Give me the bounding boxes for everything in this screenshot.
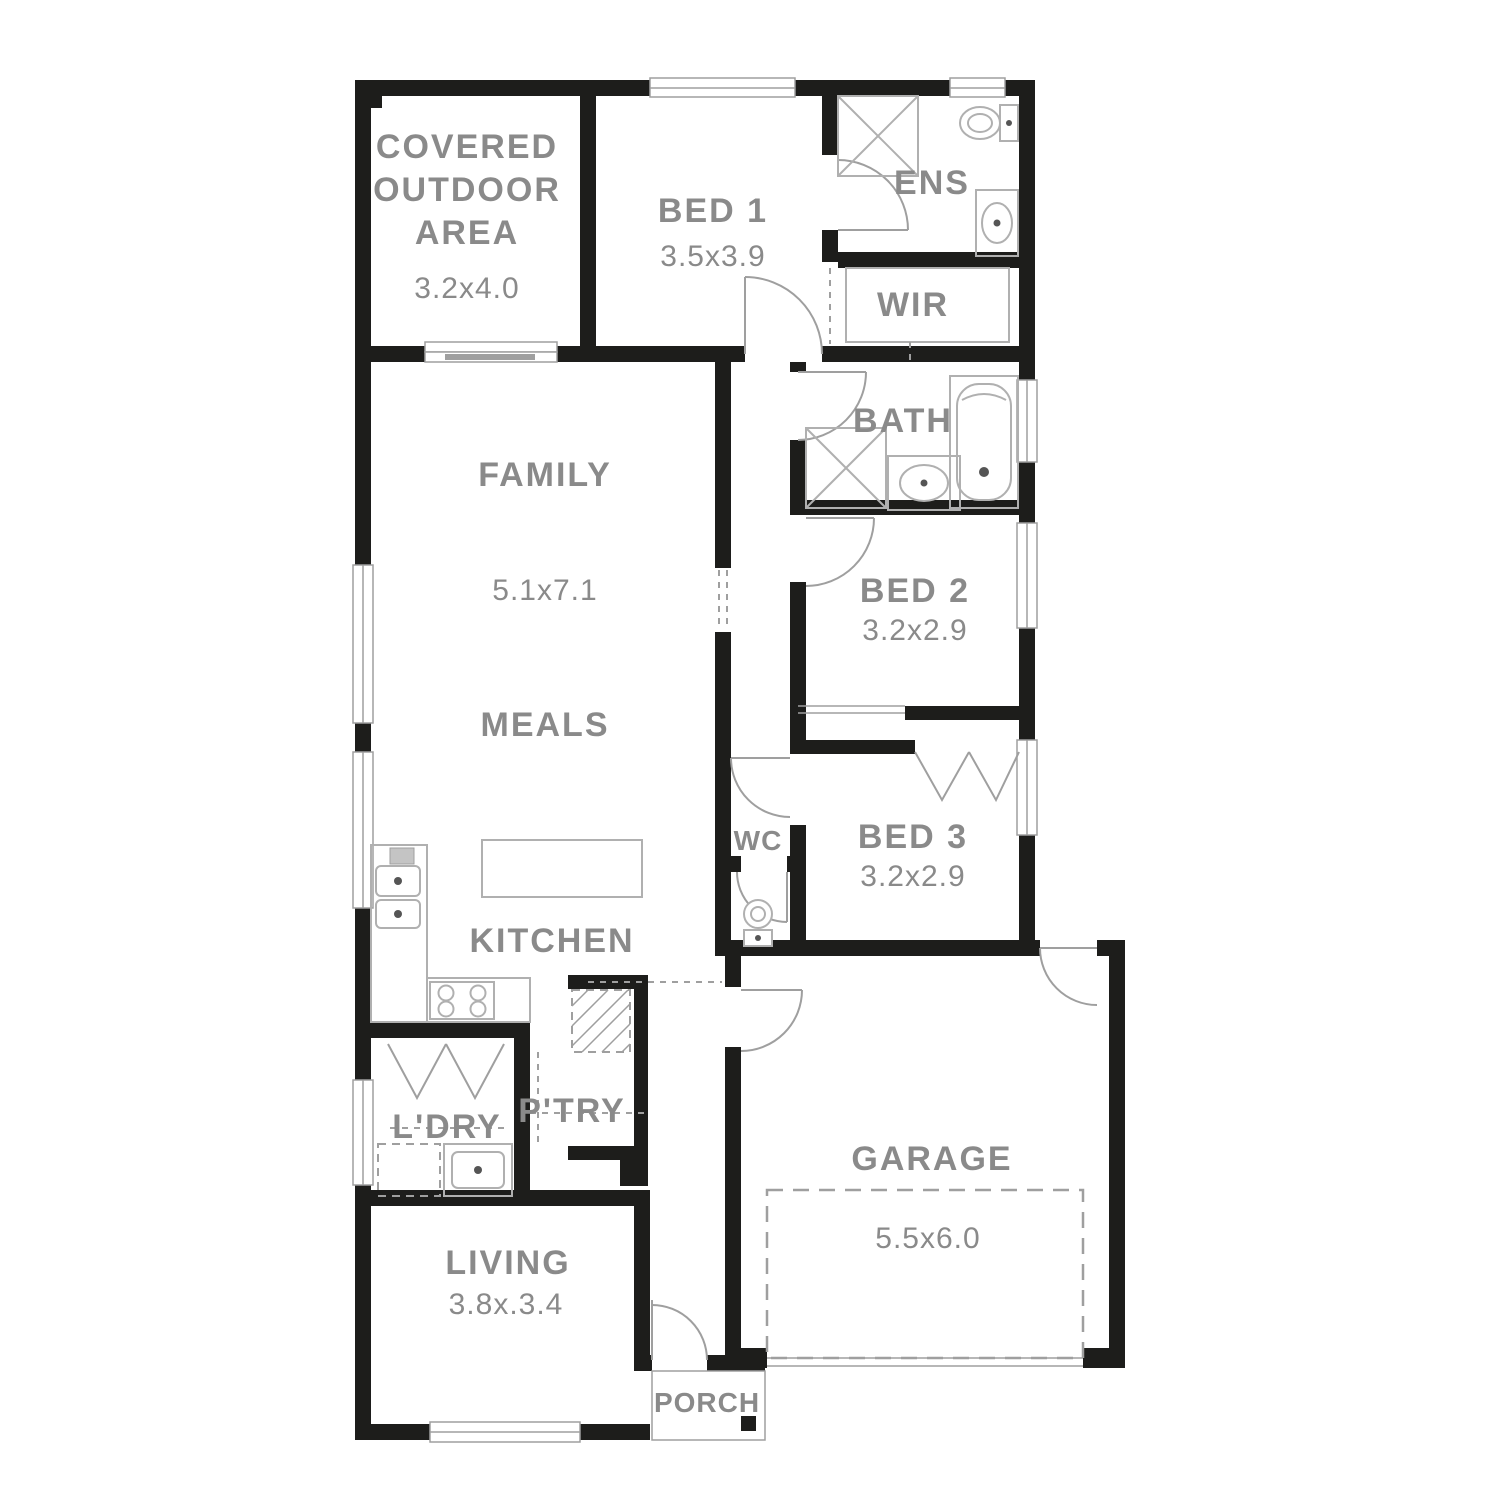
- bathtub-icon: [950, 376, 1018, 508]
- toilet-wc-icon: [744, 900, 772, 946]
- label-garage: GARAGE: [851, 1140, 1012, 1178]
- dims-living: 3.8x.3.4: [449, 1288, 564, 1321]
- dims-bed2: 3.2x2.9: [862, 614, 967, 647]
- sliding-door-icon: [425, 342, 557, 362]
- laundry-trough-icon: [444, 1144, 512, 1196]
- window-bath-icon: [1017, 380, 1037, 462]
- floor-plan-drawing: COVERED OUTDOOR AREA 3.2x4.0 BED 1 3.5x3…: [0, 0, 1500, 1500]
- door-garage-external-icon: [1040, 948, 1097, 1005]
- window-family-icon: [353, 565, 373, 723]
- dims-covered-outdoor: 3.2x4.0: [414, 272, 519, 305]
- toilet-ens-icon: [960, 105, 1018, 141]
- porch-pillar: [741, 1416, 756, 1431]
- room-labels: COVERED OUTDOOR AREA 3.2x4.0 BED 1 3.5x3…: [373, 128, 1013, 1418]
- door-robe-slider-icon: [798, 706, 905, 713]
- vanity-ens-icon: [976, 190, 1018, 256]
- dims-bed1: 3.5x3.9: [660, 240, 765, 273]
- label-pantry: P'TRY: [518, 1092, 626, 1130]
- label-ens: ENS: [894, 164, 970, 202]
- label-laundry: L'DRY: [392, 1108, 501, 1146]
- kitchen-sink-icon: [371, 845, 427, 1022]
- label-covered-outdoor-2: OUTDOOR: [373, 171, 561, 209]
- label-bed2: BED 2: [860, 572, 970, 610]
- label-porch: PORCH: [654, 1387, 760, 1418]
- appliance-space: [378, 1144, 440, 1196]
- plan-corner-marker: [368, 94, 382, 108]
- window-bed1-icon: [650, 78, 795, 97]
- window-living-icon: [430, 1422, 580, 1442]
- door-garage-internal-icon: [741, 990, 802, 1051]
- label-bed1: BED 1: [658, 192, 768, 230]
- door-robe-bifold-icon: [915, 752, 1019, 800]
- label-wir: WIR: [877, 286, 949, 324]
- window-laundry-icon: [353, 1080, 373, 1185]
- window-bed3-icon: [1017, 740, 1037, 835]
- window-bed2-icon: [1017, 523, 1037, 628]
- island-bench-icon: [482, 840, 642, 897]
- door-entry-icon: [652, 1300, 707, 1360]
- label-bath: BATH: [853, 402, 953, 440]
- dims-garage: 5.5x6.0: [875, 1222, 980, 1255]
- label-bed3: BED 3: [858, 818, 968, 856]
- label-meals: MEALS: [481, 706, 610, 744]
- cooktop-icon: [427, 978, 530, 1022]
- label-living: LIVING: [445, 1244, 570, 1282]
- floor-plan-page: COVERED OUTDOOR AREA 3.2x4.0 BED 1 3.5x3…: [0, 0, 1500, 1500]
- shower-bath-icon: [806, 428, 886, 508]
- door-bed3-icon: [731, 758, 790, 817]
- label-covered-outdoor-3: AREA: [415, 214, 519, 252]
- door-laundry-bifold-icon: [388, 1044, 504, 1098]
- hatched-space-icon: [572, 990, 630, 1052]
- doors: [388, 160, 1097, 1360]
- dims-bed3: 3.2x2.9: [860, 860, 965, 893]
- label-kitchen: KITCHEN: [469, 922, 634, 960]
- door-bed1-icon: [745, 277, 822, 354]
- garage-car-space: [767, 1190, 1083, 1358]
- label-covered-outdoor-1: COVERED: [376, 128, 558, 166]
- dims-family: 5.1x7.1: [492, 574, 597, 607]
- window-ens-icon: [950, 78, 1005, 97]
- label-family: FAMILY: [478, 456, 612, 494]
- label-wc: WC: [734, 825, 783, 856]
